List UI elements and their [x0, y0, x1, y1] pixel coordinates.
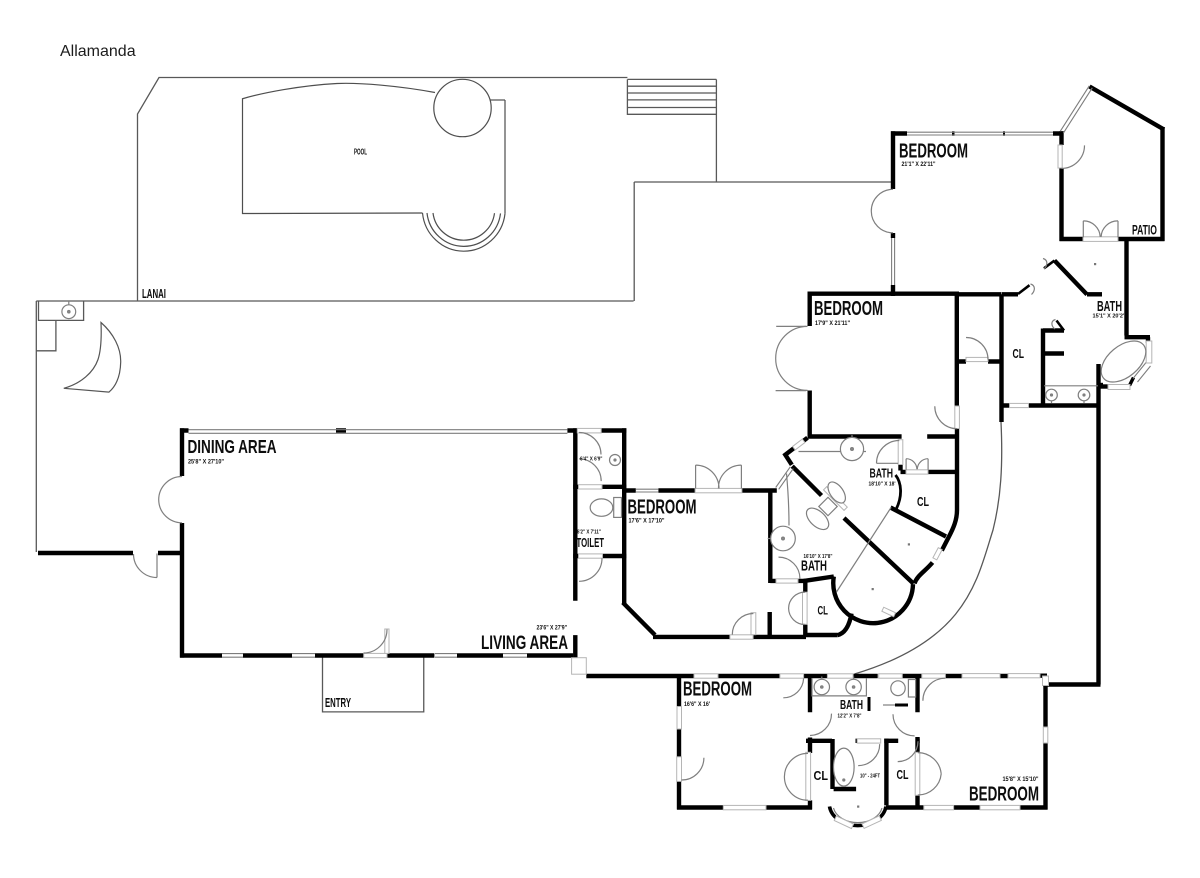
svg-text:23'6" X 27'9": 23'6" X 27'9" [537, 625, 568, 632]
svg-text:15'1" X 20'2": 15'1" X 20'2" [1093, 314, 1126, 320]
svg-text:LIVING AREA: LIVING AREA [481, 633, 568, 654]
svg-text:10" - 24FT: 10" - 24FT [860, 774, 880, 780]
svg-text:CL: CL [814, 768, 829, 783]
svg-text:CL: CL [818, 604, 829, 618]
svg-text:LANAI: LANAI [142, 287, 166, 301]
svg-text:CL: CL [897, 767, 909, 782]
svg-text:16'6" X 16': 16'6" X 16' [684, 701, 710, 708]
svg-text:ENTRY: ENTRY [325, 695, 351, 710]
svg-text:POOL: POOL [354, 148, 367, 157]
svg-text:BEDROOM: BEDROOM [683, 678, 752, 701]
svg-text:BEDROOM: BEDROOM [969, 783, 1039, 806]
svg-text:12'2" X 7'8": 12'2" X 7'8" [838, 714, 862, 720]
svg-text:Allamanda: Allamanda [60, 43, 136, 60]
svg-text:CL: CL [1013, 346, 1025, 361]
svg-text:18'10" X 18': 18'10" X 18' [869, 482, 897, 488]
svg-text:6'4" X 6'9": 6'4" X 6'9" [580, 457, 603, 463]
svg-text:BEDROOM: BEDROOM [628, 496, 697, 519]
svg-text:TOILET: TOILET [577, 535, 605, 550]
svg-text:BEDROOM: BEDROOM [814, 297, 883, 320]
svg-text:17'9" X 21'11": 17'9" X 21'11" [815, 320, 850, 327]
svg-text:CL: CL [917, 494, 929, 509]
svg-text:21'1" X 22'11": 21'1" X 22'11" [902, 161, 936, 168]
svg-text:BATH: BATH [801, 559, 827, 575]
svg-text:BATH: BATH [870, 466, 894, 481]
svg-text:25'8" X 27'10": 25'8" X 27'10" [188, 459, 224, 466]
svg-text:DINING AREA: DINING AREA [188, 436, 277, 457]
svg-text:BATH: BATH [840, 697, 863, 712]
svg-text:BEDROOM: BEDROOM [899, 140, 968, 163]
svg-text:17'6" X 17'10": 17'6" X 17'10" [629, 518, 665, 525]
svg-text:PATIO: PATIO [1132, 223, 1157, 238]
